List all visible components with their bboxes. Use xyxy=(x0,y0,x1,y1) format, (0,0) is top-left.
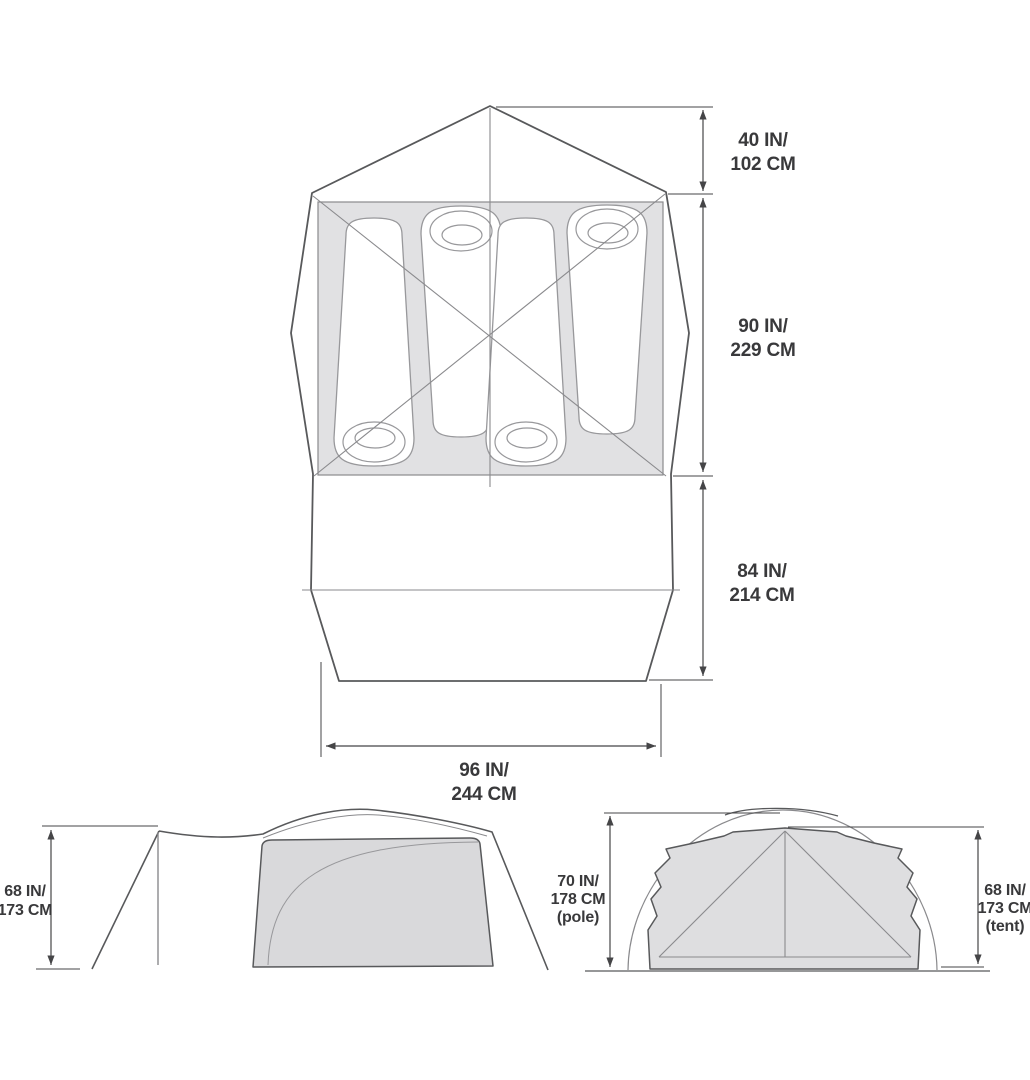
dimension-label-vestibule-depth-line2: 102 CM xyxy=(730,154,795,175)
tent-spec-diagram: 40 IN/ 102 CM 90 IN/ 229 CM 84 IN/ 214 C… xyxy=(0,0,1030,1080)
side-door-panel xyxy=(253,838,493,967)
dimension-label-floor-width-line1: 96 IN/ xyxy=(459,760,509,781)
dimension-label-side-height-line1: 68 IN/ xyxy=(4,883,46,900)
inner-tent-front xyxy=(648,828,920,969)
dimension-label-pole-height-line1: 70 IN/ xyxy=(557,873,599,890)
dimension-label-side-height-line2: 173 CM xyxy=(0,902,52,919)
dimension-label-floor-width-line2: 244 CM xyxy=(451,784,516,805)
sleeping-pad-hood-opening xyxy=(442,225,482,245)
dimension-label-porch-length-line1: 84 IN/ xyxy=(737,561,787,582)
fly-inner-edge xyxy=(263,815,487,838)
dimension-label-floor-length-line1: 90 IN/ xyxy=(738,316,788,337)
dimension-label-tent-height-line1: 68 IN/ xyxy=(984,882,1026,899)
dimension-label-vestibule-depth-line1: 40 IN/ xyxy=(738,130,788,151)
vestibule-profile xyxy=(92,831,159,969)
dimension-label-porch-length-line2: 214 CM xyxy=(729,585,794,606)
top-view: 40 IN/ 102 CM 90 IN/ 229 CM 84 IN/ 214 C… xyxy=(291,106,796,805)
sleeping-pad-1 xyxy=(334,218,414,466)
dimension-label-tent-height-line2: 173 CM xyxy=(978,900,1030,917)
dimension-label-pole-height-line3: (pole) xyxy=(557,909,599,926)
sleeping-pad-3 xyxy=(486,218,566,466)
front-view: 70 IN/ 178 CM (pole) 68 IN/ 173 CM (tent… xyxy=(551,808,1030,971)
sleeping-pad-hood-opening xyxy=(507,428,547,448)
dimension-label-floor-length-line2: 229 CM xyxy=(730,340,795,361)
dimension-label-tent-height-line3: (tent) xyxy=(986,918,1025,935)
side-view: 68 IN/ 173 CM xyxy=(0,809,548,970)
sleeping-pad-4 xyxy=(567,205,647,434)
dimension-label-pole-height-line2: 178 CM xyxy=(551,891,606,908)
